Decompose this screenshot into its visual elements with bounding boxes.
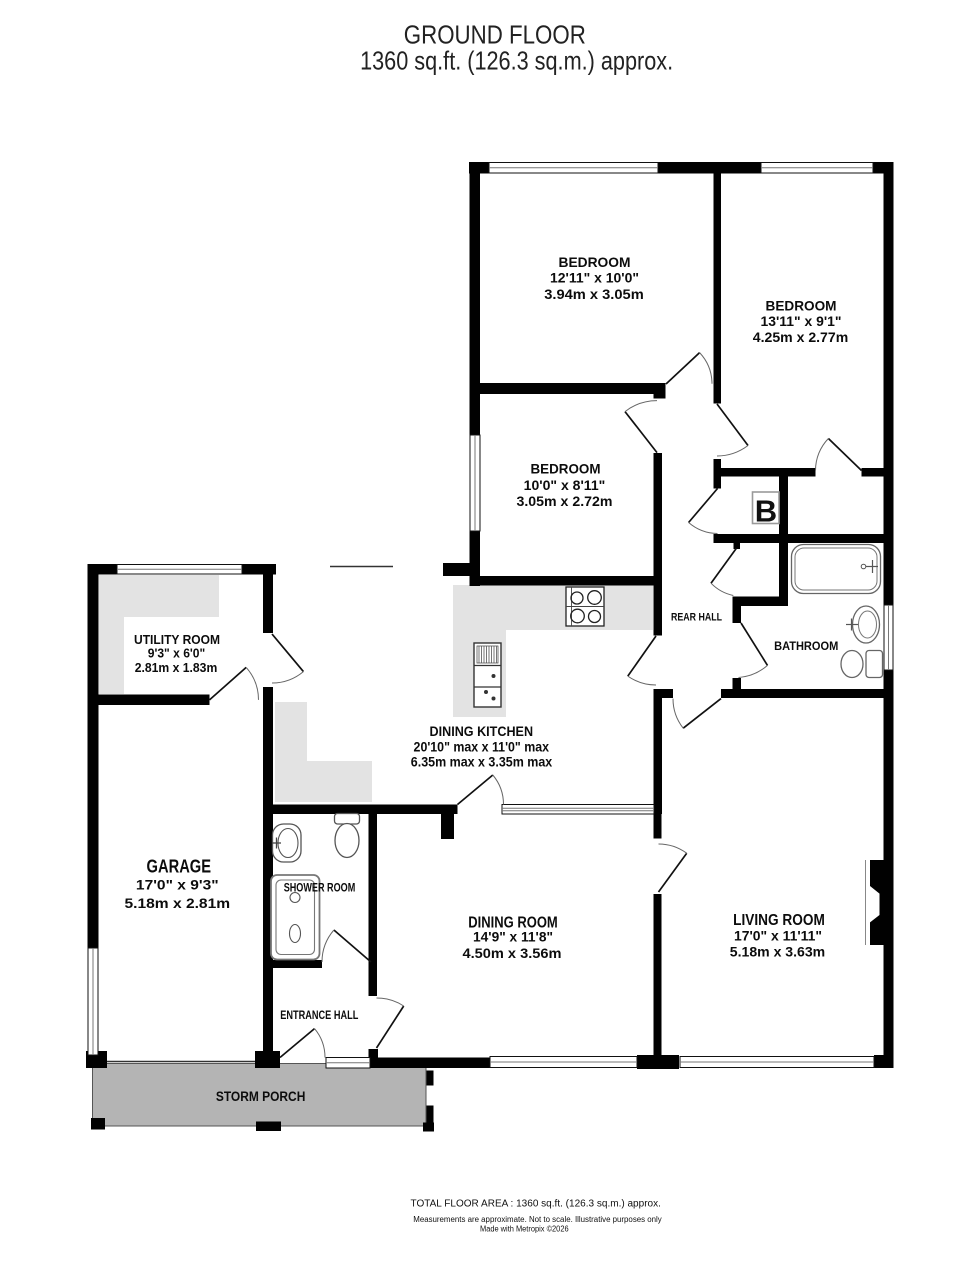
svg-text:B: B xyxy=(755,494,777,529)
svg-text:BEDROOM: BEDROOM xyxy=(766,297,837,313)
svg-text:ENTRANCE HALL: ENTRANCE HALL xyxy=(280,1010,358,1022)
svg-text:UTILITY ROOM: UTILITY ROOM xyxy=(134,633,220,647)
svg-text:5.18m x 2.81m: 5.18m x 2.81m xyxy=(125,895,231,911)
svg-text:Made with Metropix ©2026: Made with Metropix ©2026 xyxy=(480,1225,569,1234)
svg-text:3.94m x 3.05m: 3.94m x 3.05m xyxy=(544,286,644,302)
svg-text:14'9" x 11'8": 14'9" x 11'8" xyxy=(473,929,553,945)
svg-text:LIVING ROOM: LIVING ROOM xyxy=(733,912,825,929)
svg-text:REAR HALL: REAR HALL xyxy=(671,612,722,624)
svg-text:DINING KITCHEN: DINING KITCHEN xyxy=(430,723,534,739)
svg-text:6.35m max x 3.35m max: 6.35m max x 3.35m max xyxy=(411,753,553,769)
svg-text:4.25m x 2.77m: 4.25m x 2.77m xyxy=(753,329,849,345)
svg-text:20'10" max x 11'0" max: 20'10" max x 11'0" max xyxy=(414,739,550,755)
svg-text:4.50m x 3.56m: 4.50m x 3.56m xyxy=(463,945,562,961)
svg-text:17'0" x 11'11": 17'0" x 11'11" xyxy=(734,927,822,943)
svg-text:17'0" x 9'3": 17'0" x 9'3" xyxy=(136,876,219,892)
svg-text:GARAGE: GARAGE xyxy=(147,857,212,877)
svg-text:10'0" x 8'11": 10'0" x 8'11" xyxy=(524,477,606,493)
svg-text:BEDROOM: BEDROOM xyxy=(531,461,601,477)
svg-text:5.18m x 3.63m: 5.18m x 3.63m xyxy=(730,944,825,960)
svg-text:Measurements are approximate.: Measurements are approximate. Not to sca… xyxy=(413,1215,662,1224)
svg-text:TOTAL FLOOR AREA : 1360 sq.ft.: TOTAL FLOOR AREA : 1360 sq.ft. (126.3 sq… xyxy=(411,1198,661,1209)
svg-text:9'3" x 6'0": 9'3" x 6'0" xyxy=(148,647,206,661)
svg-text:3.05m x 2.72m: 3.05m x 2.72m xyxy=(517,493,613,509)
svg-text:1360 sq.ft. (126.3 sq.m.) appr: 1360 sq.ft. (126.3 sq.m.) approx. xyxy=(360,45,673,75)
svg-text:STORM PORCH: STORM PORCH xyxy=(216,1089,306,1104)
svg-text:2.81m x 1.83m: 2.81m x 1.83m xyxy=(135,661,218,675)
svg-text:13'11" x 9'1": 13'11" x 9'1" xyxy=(761,313,842,329)
svg-text:BEDROOM: BEDROOM xyxy=(559,254,631,270)
svg-text:BATHROOM: BATHROOM xyxy=(774,641,838,653)
svg-text:12'11" x 10'0": 12'11" x 10'0" xyxy=(550,270,639,286)
svg-text:SHOWER ROOM: SHOWER ROOM xyxy=(284,883,356,895)
